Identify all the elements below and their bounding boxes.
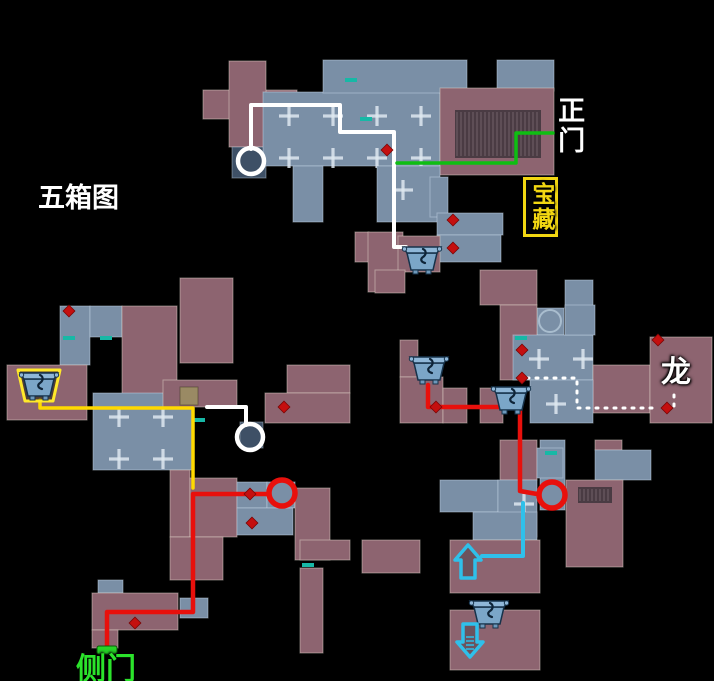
building-block (237, 508, 293, 535)
side-gate-label: 侧门 (76, 654, 136, 681)
chest-foot (515, 410, 520, 414)
chest-lid (492, 387, 530, 393)
chest-foot (493, 624, 498, 628)
building-block (180, 387, 198, 405)
chest-lid-curl (469, 601, 473, 605)
building-block (578, 487, 612, 503)
hallway-mark (419, 148, 422, 168)
building-block (565, 305, 595, 335)
building-block (300, 568, 323, 653)
building-block (90, 306, 122, 337)
chest-foot (420, 380, 425, 384)
hallway-mark (401, 180, 404, 200)
door-marker (545, 451, 557, 455)
treasure-label: 宝藏 (523, 177, 558, 237)
treasure-chest-icon-highlighted (18, 370, 60, 401)
map-title-label: 五箱图 (38, 184, 119, 213)
chest-lid (20, 373, 58, 379)
chest-lid-curl (402, 247, 406, 251)
building-block (595, 450, 651, 480)
building-block (437, 235, 501, 262)
hallway-mark (117, 407, 120, 427)
chest-foot (43, 396, 48, 400)
hallway-mark (331, 148, 334, 168)
main-gate-label: 正门 (554, 96, 583, 156)
chest-foot (502, 410, 507, 414)
chest-foot (433, 380, 438, 384)
door-marker (360, 117, 372, 121)
building-block (60, 306, 90, 365)
hallway-mark (554, 394, 557, 414)
door-marker (515, 336, 527, 340)
building-block (375, 270, 405, 293)
hallway-mark (581, 349, 584, 369)
chest-foot (30, 396, 35, 400)
five-chest-map: 五箱图 正门 宝藏 龙 侧门 (0, 0, 714, 681)
hallway-mark (331, 106, 334, 126)
chest-lid (410, 357, 448, 363)
chest-foot (413, 270, 418, 274)
chest-lid-curl (19, 373, 23, 377)
building-block (362, 540, 420, 573)
chest-foot (480, 624, 485, 628)
building-block (593, 365, 650, 413)
hallway-mark (287, 148, 290, 168)
hallway-mark (287, 106, 290, 126)
chest-lid-curl (491, 387, 495, 391)
hallway-mark (419, 106, 422, 126)
chest-lid-curl (409, 357, 413, 361)
building-block (265, 393, 350, 423)
chest-foot (426, 270, 431, 274)
building-block (497, 60, 554, 91)
chest-lid-curl (526, 387, 530, 391)
building-block (480, 270, 537, 305)
hallway-mark (375, 106, 378, 126)
hallway-mark (161, 449, 164, 469)
building-block (180, 278, 233, 363)
building-block (565, 280, 593, 308)
building-block (170, 537, 223, 580)
hallway-mark (537, 349, 540, 369)
building-block (287, 365, 350, 393)
chest-lid-curl (444, 357, 448, 361)
chest-lid-curl (54, 373, 58, 377)
hallway-mark (117, 449, 120, 469)
map-canvas (0, 0, 714, 681)
building-block (163, 380, 237, 407)
building-block (293, 166, 323, 222)
building-block (430, 177, 448, 217)
building-block (595, 440, 622, 450)
hallway-mark (375, 148, 378, 168)
building-block (530, 380, 593, 423)
building-block (473, 512, 537, 540)
chest-lid (470, 601, 508, 607)
building-block (440, 480, 498, 512)
door-marker (193, 418, 205, 422)
door-marker (100, 336, 112, 340)
hallway-mark (161, 407, 164, 427)
building-block (190, 478, 237, 537)
door-marker (302, 563, 314, 567)
building-block (537, 308, 564, 335)
building-block (98, 580, 123, 593)
door-marker (63, 336, 75, 340)
dragon-label: 龙 (661, 357, 691, 389)
chest-lid (403, 247, 441, 253)
chest-lid-curl (504, 601, 508, 605)
building-block (355, 232, 369, 262)
building-block (437, 213, 503, 235)
building-block (170, 470, 190, 537)
door-marker (345, 78, 357, 82)
chest-lid-curl (437, 247, 441, 251)
building-block (300, 540, 350, 560)
